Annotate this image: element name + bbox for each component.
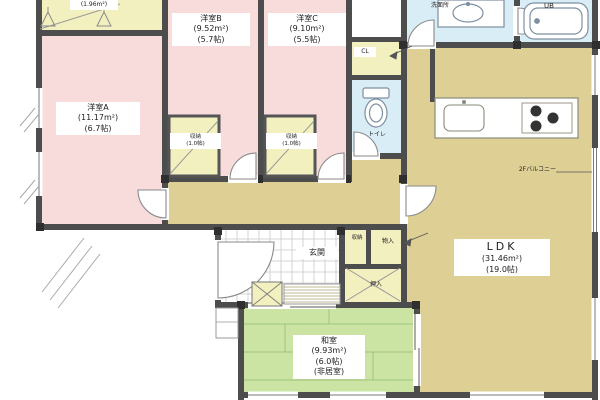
label-storage-small: 収納 bbox=[346, 234, 368, 243]
label-ldk: LDK (31.46m²) (19.0帖) bbox=[454, 239, 550, 276]
label-bath: UB bbox=[536, 1, 562, 12]
hall-stub bbox=[352, 159, 401, 182]
label-washroom: 洗面所 bbox=[418, 1, 462, 11]
hallway bbox=[168, 182, 407, 224]
label-closet-c: 収納 (1.0帖) bbox=[266, 133, 317, 149]
label-storage-large: 物入 bbox=[374, 237, 402, 247]
kitchen-counter-icon bbox=[435, 98, 578, 138]
label-futon-closet: 押入 bbox=[362, 280, 390, 290]
label-japanese-room: 和室 (9.93m²) (6.0帖) (非居室) bbox=[293, 335, 365, 379]
label-closet-b: 収納 (1.0帖) bbox=[170, 133, 221, 149]
label-closet-hall: CL bbox=[354, 47, 376, 57]
label-western-b: 洋室B (9.52m²) (5.7帖) bbox=[172, 13, 250, 46]
label-wic-area: (1.96m²) bbox=[70, 0, 118, 10]
floor-plan: 洋室A (11.17m²) (6.7帖) 洋室B (9.52m²) (5.7帖)… bbox=[0, 0, 600, 400]
label-toilet: トイレ bbox=[362, 130, 392, 140]
label-western-a: 洋室A (11.17m²) (6.7帖) bbox=[56, 102, 140, 135]
label-entrance: 玄関 bbox=[296, 247, 338, 259]
label-balcony-note: 2Fバルコニー bbox=[488, 165, 558, 175]
toilet-icon bbox=[363, 88, 389, 127]
label-western-c: 洋室C (9.10m²) (5.5帖) bbox=[268, 13, 346, 46]
